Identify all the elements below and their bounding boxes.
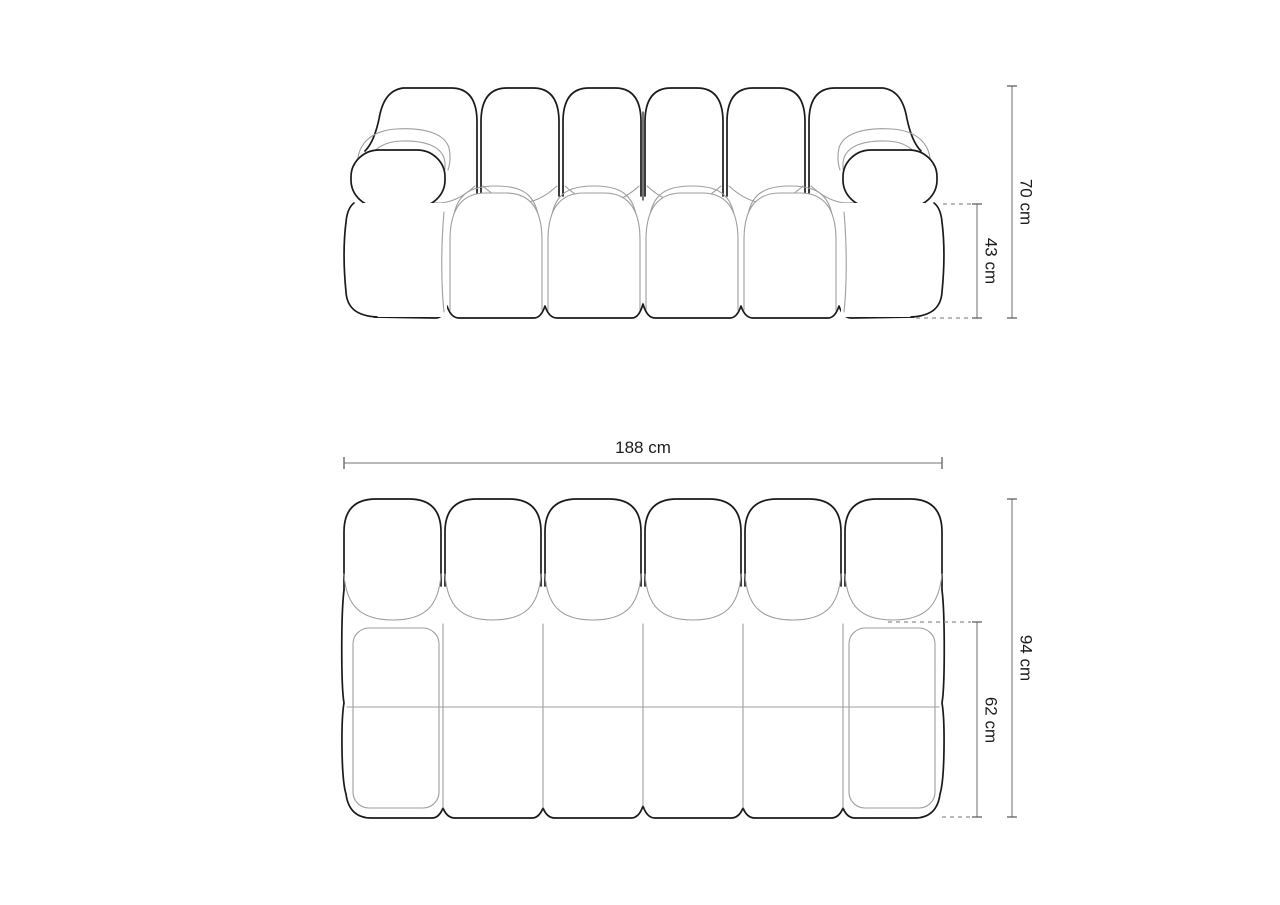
top-module [545, 499, 641, 620]
top-module [745, 499, 841, 620]
top-module-fill [745, 499, 841, 612]
top-back-row [344, 499, 942, 620]
top-view [342, 499, 945, 818]
sofa-dimension-diagram: 188 cm 70 cm 43 cm 94 cm [0, 0, 1280, 905]
top-module [445, 499, 541, 620]
dimension-label: 43 cm [982, 238, 1001, 284]
top-left-armrest-inner-outline [353, 628, 439, 808]
overall-height-dimension: 70 cm [1007, 86, 1036, 318]
top-module-fill [344, 499, 441, 612]
dimension-label: 188 cm [615, 438, 671, 457]
seat-cushion [744, 193, 836, 317]
seat-cushion-fill [450, 193, 542, 317]
seat-cushion-fill [548, 193, 640, 317]
front-view [344, 88, 944, 318]
width-dimension: 188 cm [344, 438, 942, 469]
seat-cushion-fill [744, 193, 836, 317]
top-module-fill [845, 499, 942, 612]
top-right-armrest-inner-outline [849, 628, 935, 808]
front-back-cushions [365, 88, 921, 215]
seat-cushion [646, 193, 738, 317]
top-module-fill [645, 499, 741, 612]
front-right-armrest [838, 129, 944, 317]
overall-depth-dimension: 94 cm [1007, 499, 1036, 817]
dimension-label: 62 cm [982, 697, 1001, 743]
seat-cushion [450, 193, 542, 317]
armrest-bubble [843, 150, 937, 207]
dimension-label: 94 cm [1017, 635, 1036, 681]
front-left-armrest [344, 129, 450, 317]
diagram-canvas: 188 cm 70 cm 43 cm 94 cm [0, 0, 1280, 905]
front-seat-cushions [450, 193, 836, 317]
armrest-base-fill [841, 203, 944, 317]
top-module [344, 499, 441, 620]
armrest-base-fill [344, 203, 447, 317]
dimension-label: 70 cm [1017, 179, 1036, 225]
seat-cushion-fill [646, 193, 738, 317]
top-seams [347, 624, 939, 808]
top-module-fill [545, 499, 641, 612]
seat-cushion [548, 193, 640, 317]
armrest-bubble [351, 150, 445, 207]
top-module [845, 499, 942, 620]
top-module [645, 499, 741, 620]
top-module-fill [445, 499, 541, 612]
